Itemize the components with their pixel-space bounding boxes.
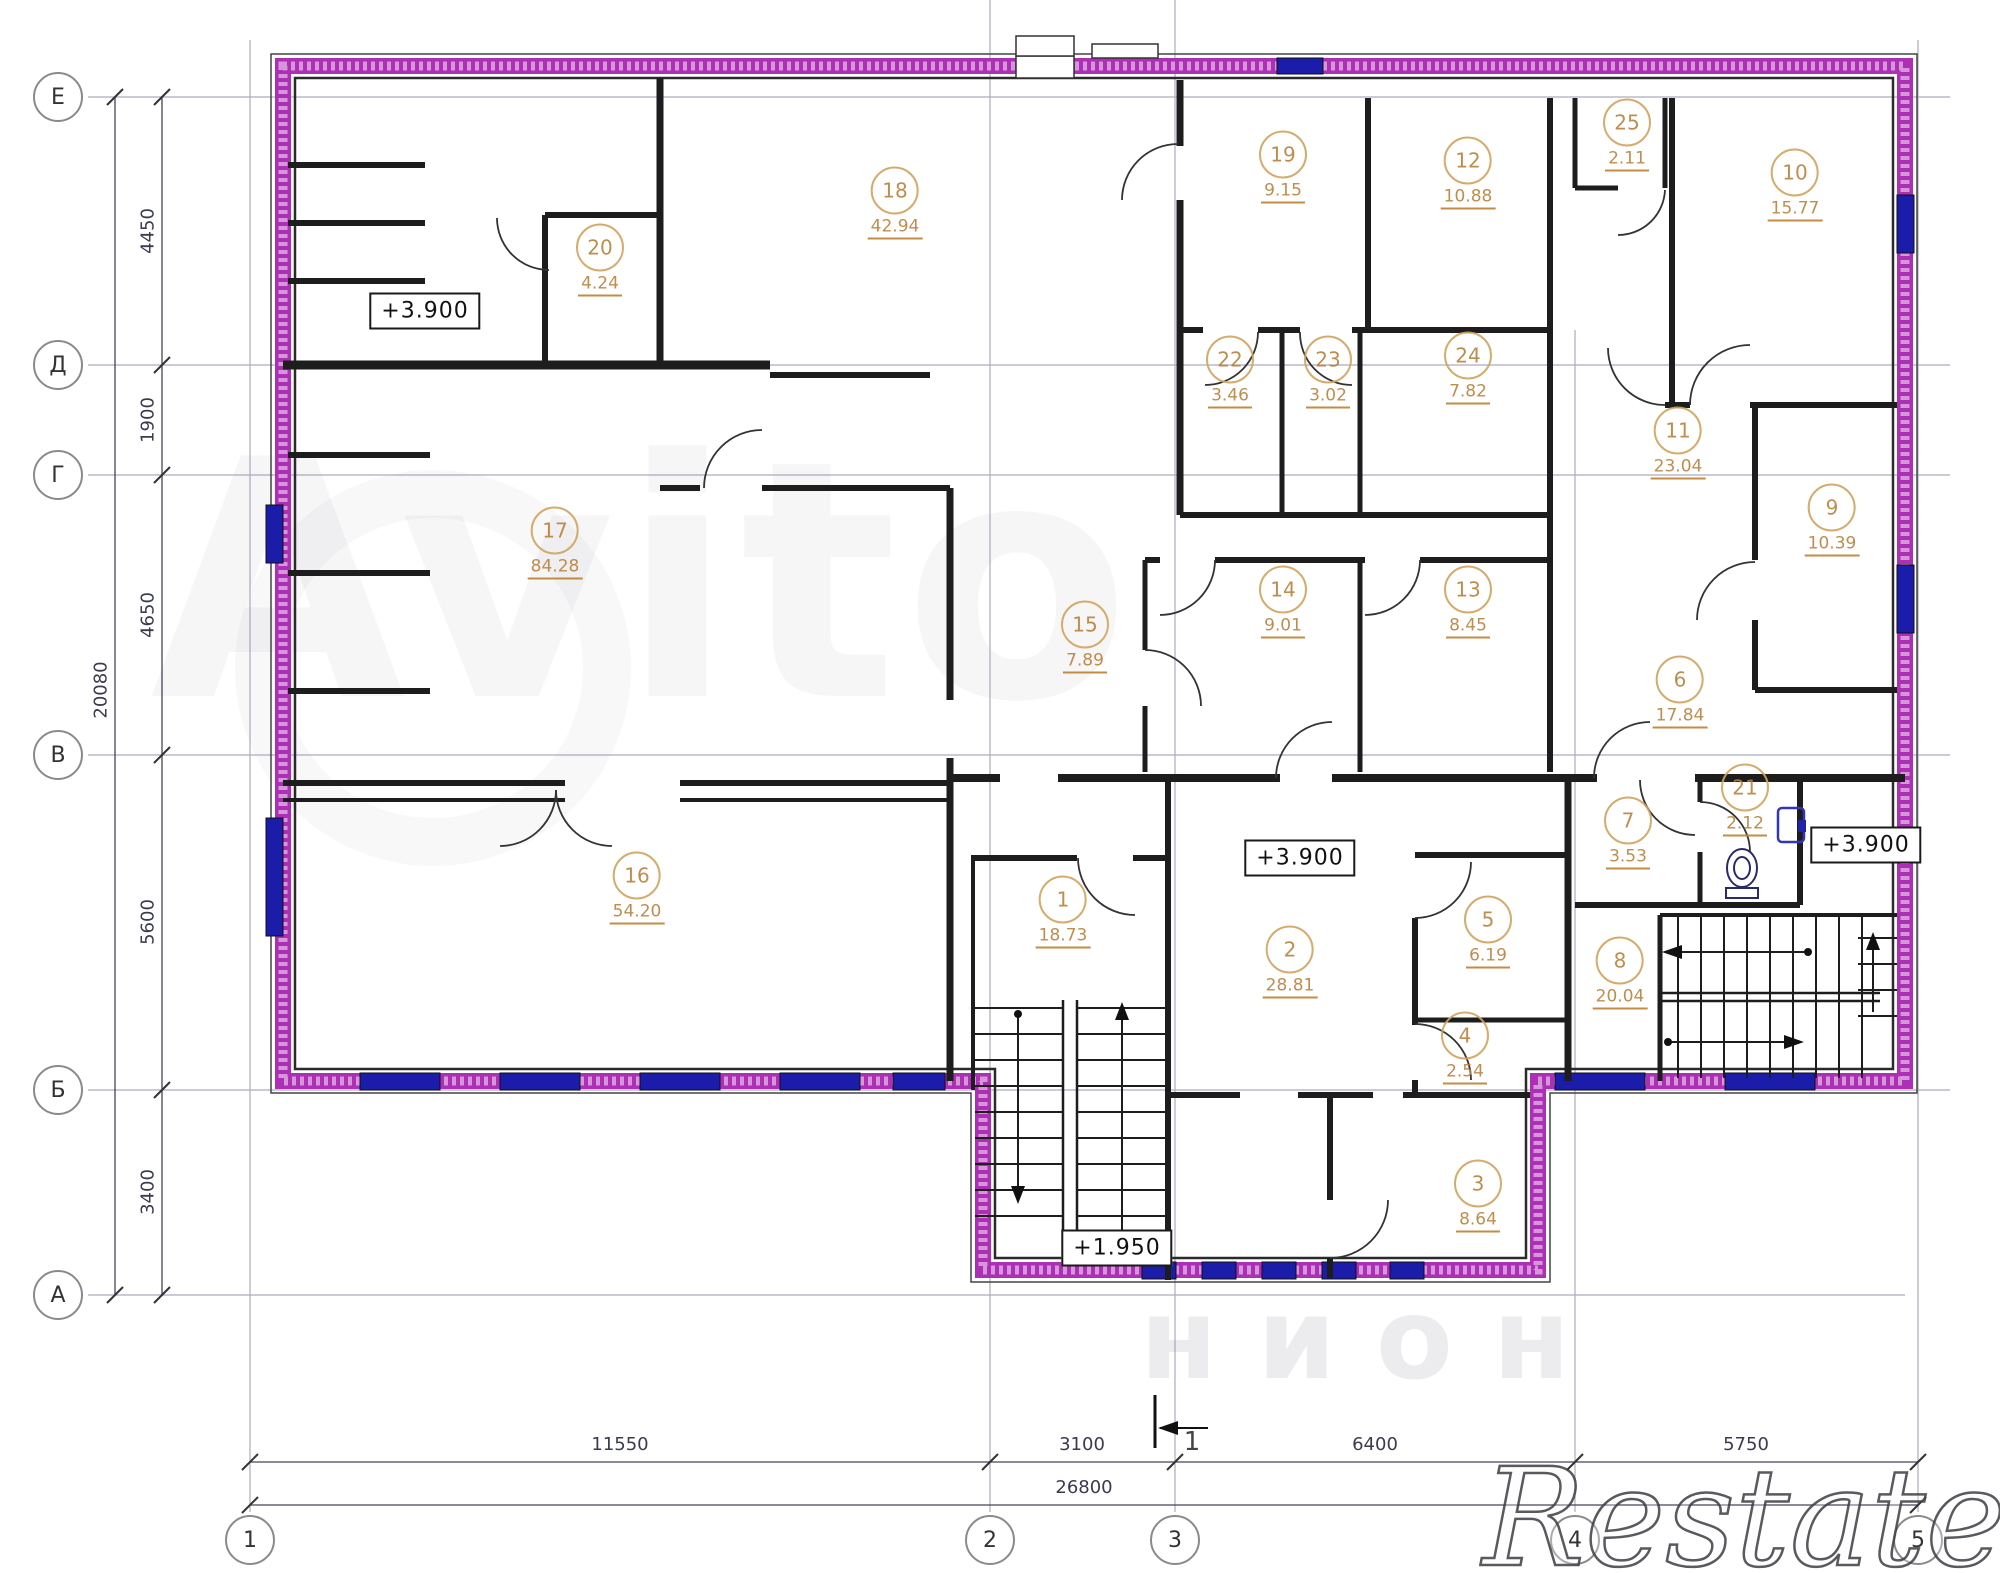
floor-plan-canvas: Avito нион <box>0 0 2000 1573</box>
section-marker <box>1155 1395 1208 1448</box>
door-arcs <box>497 144 1755 1258</box>
staircase-right <box>1660 917 1897 1078</box>
windows <box>266 58 1914 1279</box>
staircase-bottom <box>975 1000 1166 1266</box>
floor-plan-drawing <box>0 0 2000 1573</box>
watermark-restate: Restate <box>1482 1451 2000 1573</box>
interior-walls <box>283 78 1905 1280</box>
toilet-icon <box>1726 849 1758 898</box>
